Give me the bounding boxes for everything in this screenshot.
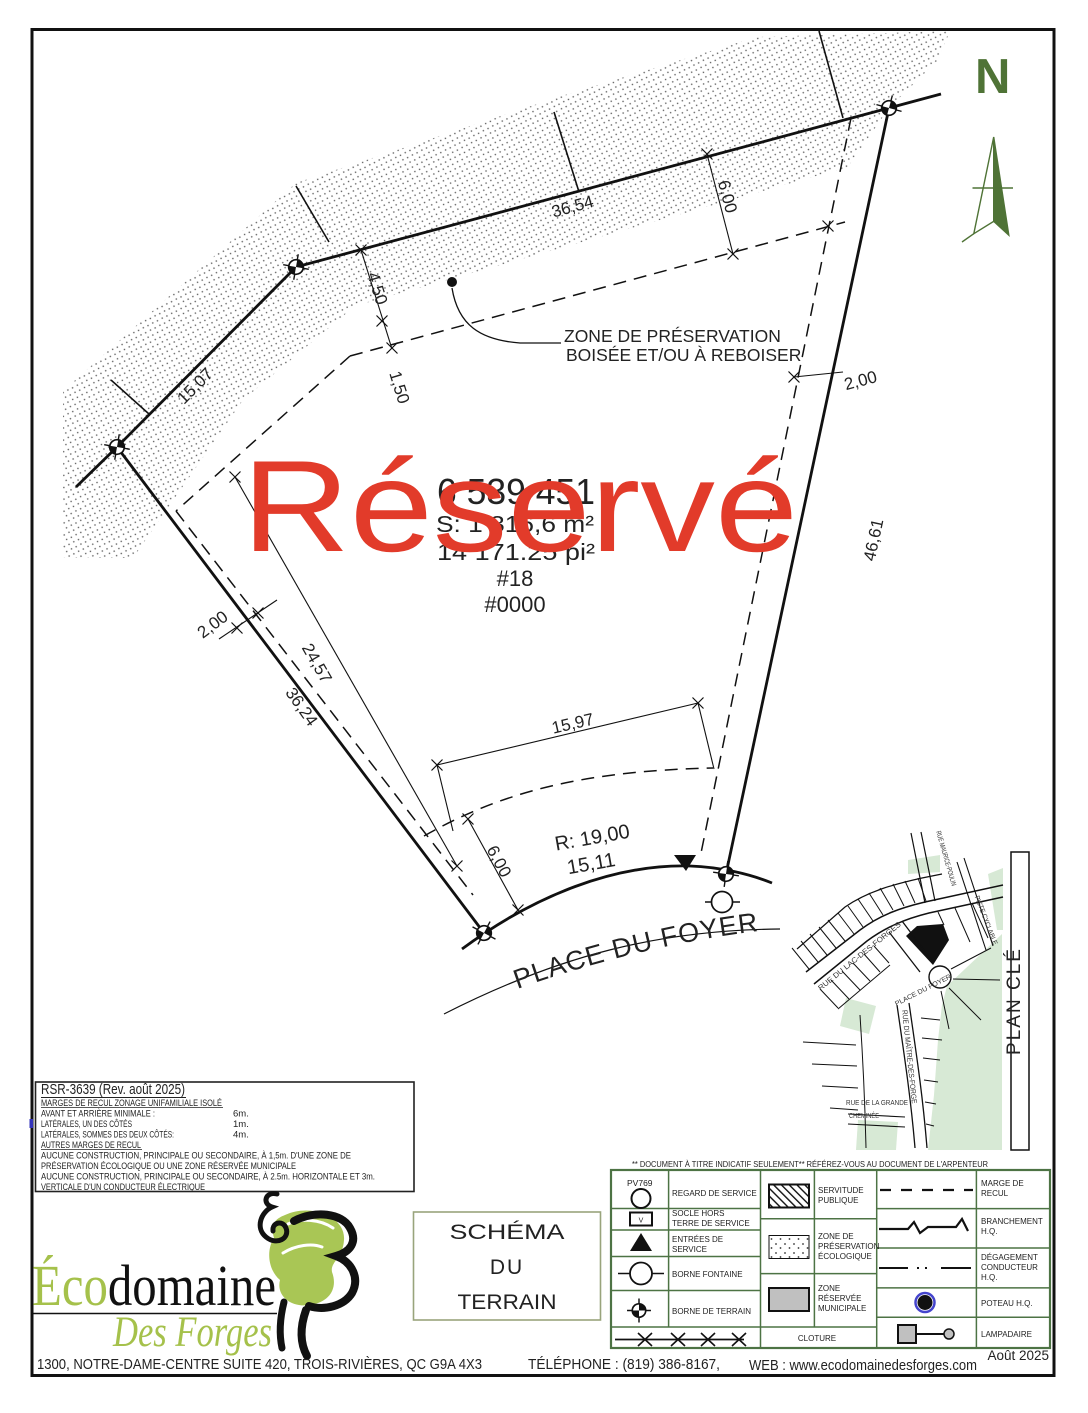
svg-text:RUE DE LA GRANDE: RUE DE LA GRANDE (846, 1098, 908, 1107)
svg-text:6m.: 6m. (233, 1109, 249, 1120)
svg-text:TERRAIN: TERRAIN (458, 1291, 557, 1314)
svg-text:LATÉRALES, UN DES CÔTÉS: LATÉRALES, UN DES CÔTÉS (41, 1119, 132, 1130)
svg-text:TERRE DE SERVICE: TERRE DE SERVICE (672, 1219, 750, 1228)
svg-text:ZONE DE: ZONE DE (818, 1232, 854, 1241)
svg-text:4m.: 4m. (233, 1130, 249, 1141)
svg-text:POTEAU H.Q.: POTEAU H.Q. (981, 1299, 1033, 1308)
svg-text:#0000: #0000 (484, 592, 545, 617)
svg-text:AUCUNE CONSTRUCTION, PRINCIPAL: AUCUNE CONSTRUCTION, PRINCIPALE OU SECON… (41, 1151, 351, 1162)
svg-text:ÉCOLOGIQUE: ÉCOLOGIQUE (818, 1252, 872, 1261)
svg-text:BORNE DE TERRAIN: BORNE DE TERRAIN (672, 1307, 751, 1316)
svg-text:ZONE DE PRÉSERVATION: ZONE DE PRÉSERVATION (564, 326, 781, 346)
svg-text:N: N (975, 50, 1010, 104)
svg-text:** DOCUMENT À TITRE INDICATIF: ** DOCUMENT À TITRE INDICATIF SEULEMENT*… (632, 1159, 988, 1169)
svg-text:Des Forges: Des Forges (112, 1309, 272, 1356)
svg-text:Réservé: Réservé (242, 433, 798, 579)
svg-text:WEB : www.ecodomainedesforges.: WEB : www.ecodomainedesforges.com (749, 1357, 977, 1374)
svg-text:BOISÉE ET/OU À REBOISER: BOISÉE ET/OU À REBOISER (566, 345, 801, 365)
svg-text:TÉLÉPHONE : (819) 386-8167,: TÉLÉPHONE : (819) 386-8167, (528, 1356, 720, 1373)
svg-text:CLOTURE: CLOTURE (798, 1334, 836, 1343)
svg-text:SOCLE HORS: SOCLE HORS (672, 1209, 724, 1218)
svg-text:SCHÉMA: SCHÉMA (450, 1221, 565, 1244)
svg-text:PLAN CLÉ: PLAN CLÉ (1004, 947, 1025, 1055)
svg-text:H.Q.: H.Q. (981, 1227, 997, 1236)
svg-text:AUCUNE CONSTRUCTION, PRINCIPAL: AUCUNE CONSTRUCTION, PRINCIPALE OU SECON… (41, 1172, 375, 1183)
svg-text:AVANT ET ARRIÈRE MINIMALE :: AVANT ET ARRIÈRE MINIMALE : (41, 1109, 155, 1120)
svg-text:DU: DU (490, 1256, 524, 1279)
svg-text:CONDUCTEUR: CONDUCTEUR (981, 1263, 1038, 1272)
svg-text:RECUL: RECUL (981, 1189, 1009, 1198)
svg-text:LATÉRALES, SOMMES DES DEUX CÔT: LATÉRALES, SOMMES DES DEUX CÔTÉS: (41, 1130, 174, 1141)
svg-text:H.Q.: H.Q. (981, 1273, 997, 1282)
svg-text:LAMPADAIRE: LAMPADAIRE (981, 1330, 1032, 1339)
svg-text:CHEMINÉE: CHEMINÉE (849, 1111, 879, 1120)
svg-text:VERTICALE D'UN CONDUCTEUR ÉLEC: VERTICALE D'UN CONDUCTEUR ÉLECTRIQUE (41, 1182, 205, 1193)
svg-text:1m.: 1m. (233, 1119, 249, 1130)
svg-text:SERVITUDE: SERVITUDE (818, 1186, 864, 1195)
svg-text:PUBLIQUE: PUBLIQUE (818, 1196, 858, 1205)
svg-text:PRÉSERVATION: PRÉSERVATION (818, 1242, 880, 1251)
svg-text:RÉSERVÉE: RÉSERVÉE (818, 1294, 861, 1303)
svg-text:MARGE DE: MARGE DE (981, 1179, 1024, 1188)
svg-text:1300, NOTRE-DAME-CENTRE SUITE: 1300, NOTRE-DAME-CENTRE SUITE 420, TROIS… (37, 1356, 482, 1373)
svg-text:MUNICIPALE: MUNICIPALE (818, 1304, 866, 1313)
svg-text:ENTRÉES DE: ENTRÉES DE (672, 1235, 723, 1244)
svg-text:PRÉSERVATION ÉCOLOGIQUE OU UNE: PRÉSERVATION ÉCOLOGIQUE OU UNE ZONE RÉSE… (41, 1161, 296, 1172)
svg-text:DÉGAGEMENT: DÉGAGEMENT (981, 1253, 1038, 1262)
svg-text:BORNE FONTAINE: BORNE FONTAINE (672, 1270, 743, 1279)
svg-text:V: V (639, 1218, 644, 1225)
svg-text:RSR-3639 (Rev. août 2025): RSR-3639 (Rev. août 2025) (41, 1081, 185, 1098)
svg-text:ZONE: ZONE (818, 1284, 840, 1293)
svg-text:Août 2025: Août 2025 (987, 1348, 1049, 1363)
svg-text:BRANCHEMENT: BRANCHEMENT (981, 1217, 1043, 1226)
svg-text:PV769: PV769 (627, 1178, 653, 1188)
svg-text:REGARD DE SERVICE: REGARD DE SERVICE (672, 1189, 757, 1198)
svg-text:SERVICE: SERVICE (672, 1245, 707, 1254)
